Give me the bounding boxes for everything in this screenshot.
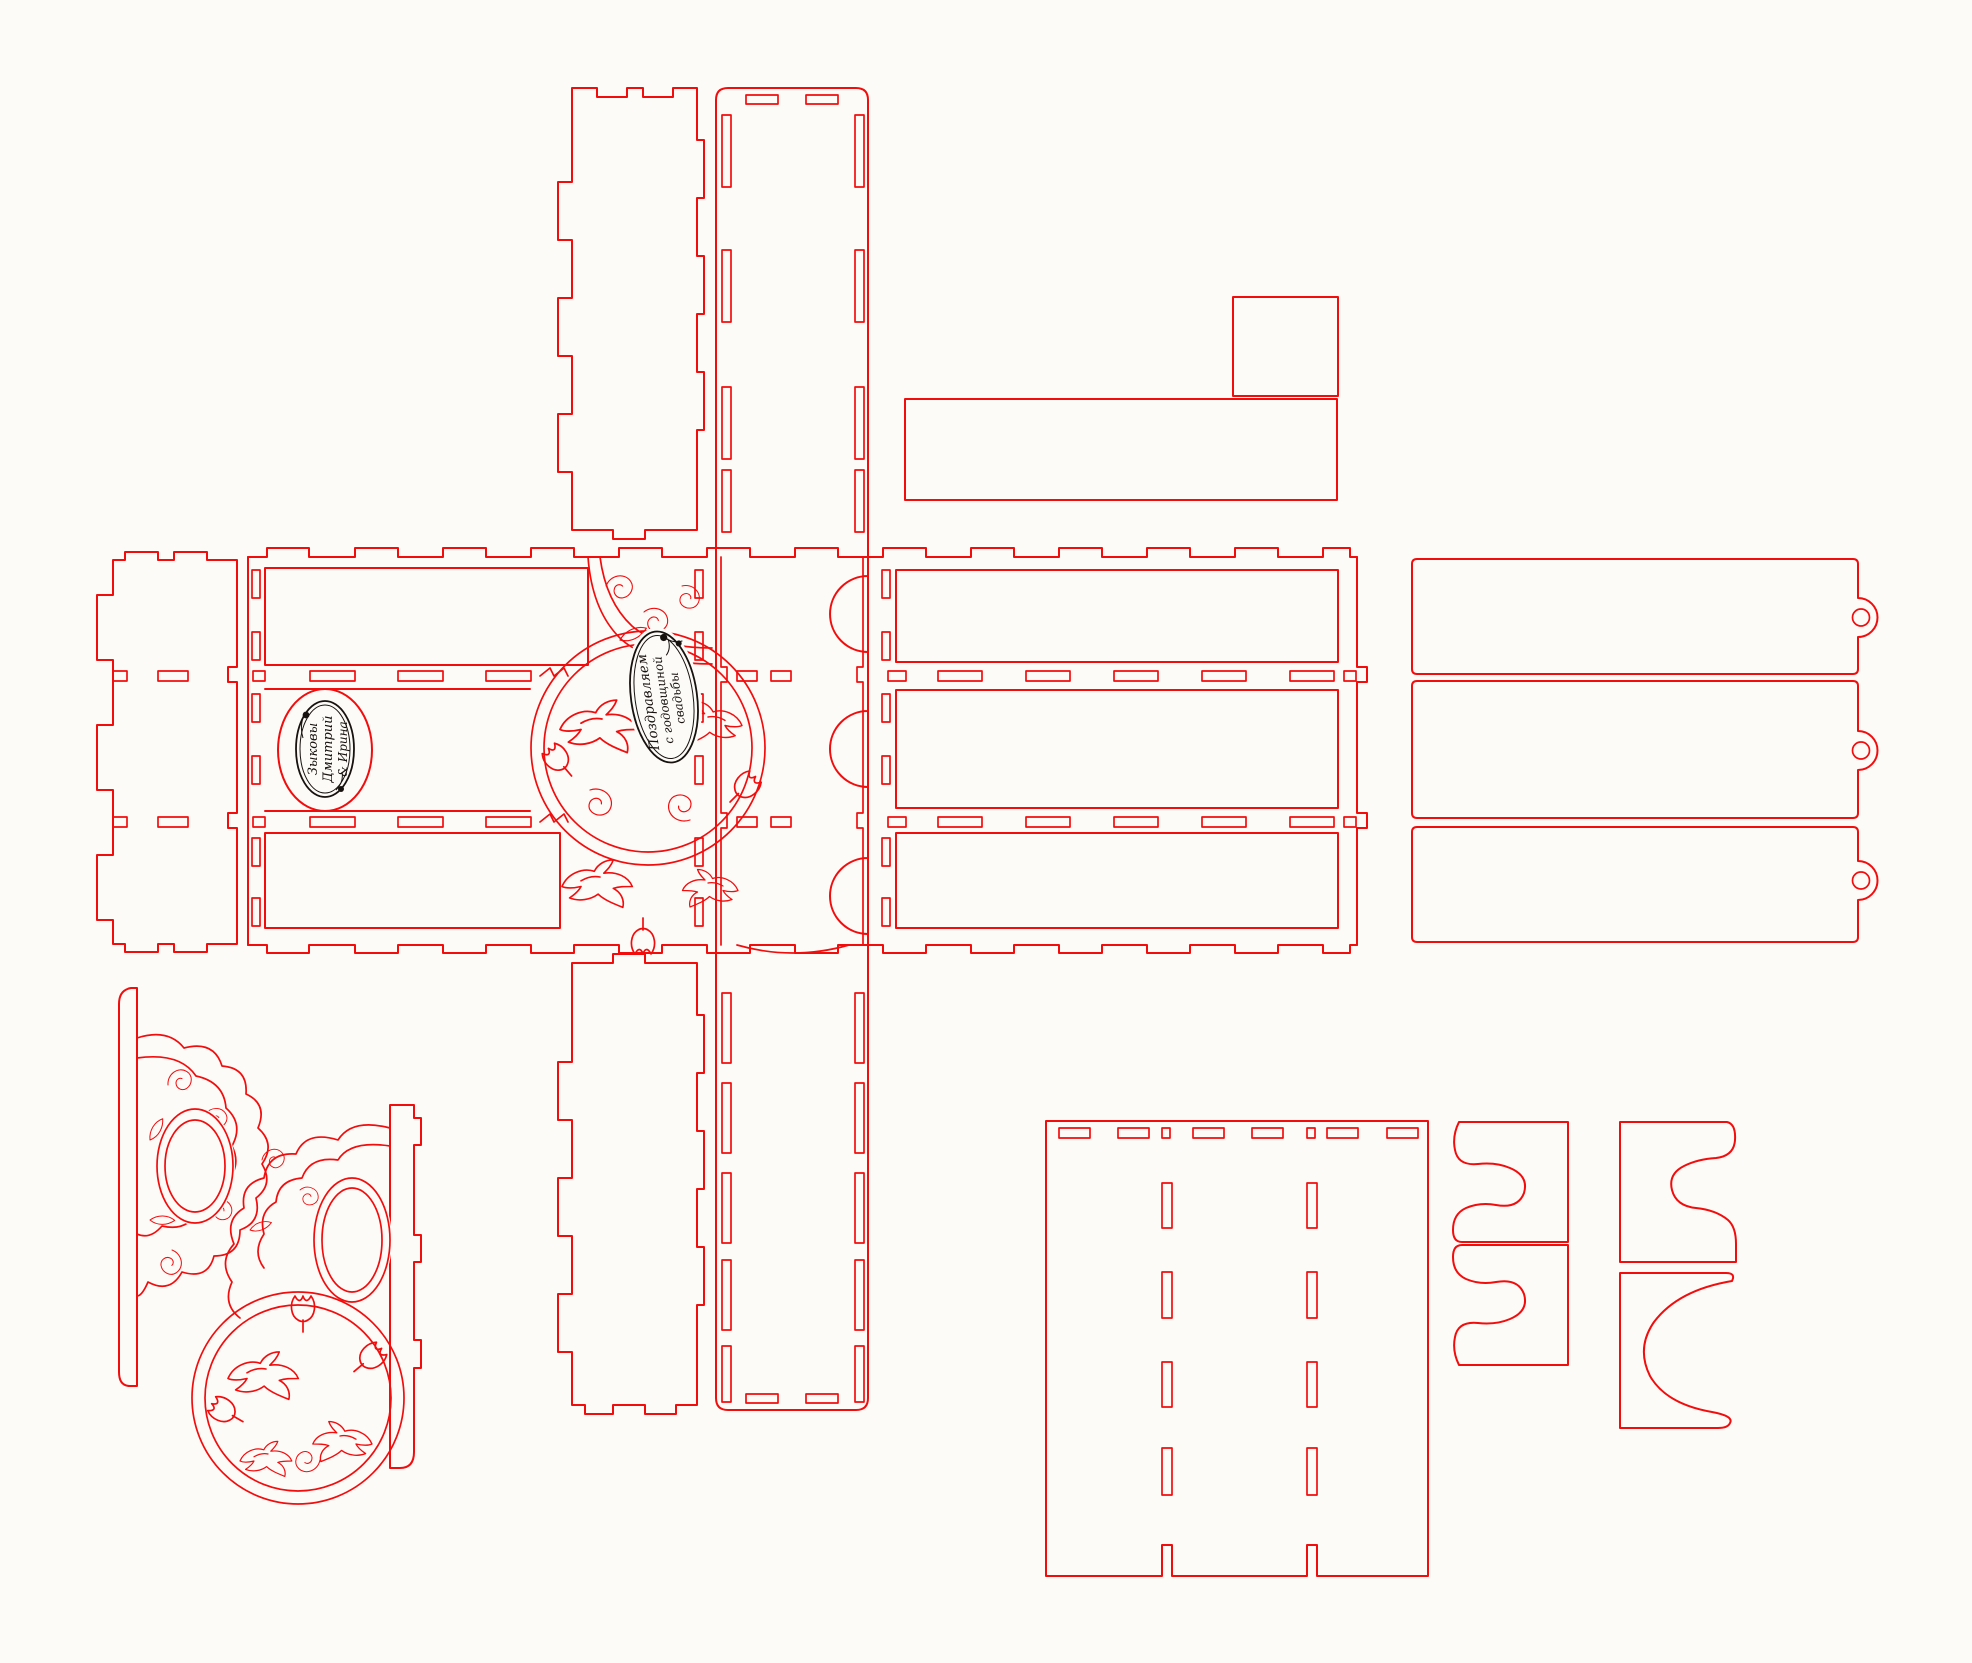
- names-line-1: Зыковы: [306, 723, 321, 775]
- shelf-plank-1-hole: [1853, 609, 1870, 626]
- shelf-planks-group: [1412, 559, 1878, 942]
- laser-cut-layout-canvas: Зыковы Дмитрий & Ирина Поздравляем с год…: [0, 0, 1972, 1663]
- base-panel-slots: [1059, 1128, 1418, 1495]
- bracket-wave-bottom-left: [1453, 1245, 1568, 1365]
- back-panel-window-top: [896, 570, 1338, 662]
- side-right-fan: [225, 1125, 392, 1318]
- back-panel-slots: [882, 570, 890, 926]
- names-oval-plaque: Зыковы Дмитрий & Ирина: [293, 698, 357, 800]
- band-bottom-edge: [248, 945, 1357, 953]
- shelf-plank-2-hole: [1853, 742, 1870, 759]
- plaque-sprig-bud: [303, 712, 310, 719]
- back-panel-window-mid: [896, 690, 1338, 808]
- piece-bottom-wall-panel: [558, 954, 704, 1414]
- piece-back-panel: [830, 557, 1356, 945]
- front-panel-window-bottom: [265, 833, 560, 928]
- base-panel-outline: [1046, 1121, 1428, 1576]
- long-side-slot-cutouts: [722, 95, 864, 1403]
- shelf-plank-2: [1412, 681, 1878, 818]
- side-right-dove-medallion: [192, 1292, 404, 1504]
- band-thumb-notch: [737, 945, 849, 953]
- back-panel-window-bottom: [896, 833, 1338, 928]
- side-right-bar: [390, 1105, 421, 1468]
- long-side-outline: [716, 88, 868, 1410]
- bracket-cradle-bottom-right: [1620, 1273, 1733, 1428]
- band-finger-joint-edges: [248, 548, 1367, 953]
- shelf-plank-3-hole: [1853, 872, 1870, 889]
- piece-long-side-panel: [716, 88, 868, 1410]
- strip-stack-horizontal-block: [905, 399, 1337, 500]
- laser-cut-layout-page: Зыковы Дмитрий & Ирина Поздравляем с год…: [0, 0, 1972, 1663]
- strip-stack-vertical-block: [1233, 297, 1338, 396]
- piece-top-wall-panel: [558, 88, 704, 539]
- bracket-wave-top-right: [1620, 1122, 1736, 1262]
- piece-base-panel: [1046, 1121, 1428, 1576]
- front-panel-window-top: [265, 568, 588, 665]
- bracket-wave-top-left: [1453, 1122, 1568, 1242]
- piece-ornate-front-panel: Зыковы Дмитрий & Ирина Поздравляем с год…: [252, 557, 791, 954]
- band-right-edge: [1357, 557, 1367, 945]
- back-panel-divider-dashes: [888, 671, 1356, 827]
- piece-ornate-side-left: [119, 988, 268, 1386]
- bracket-pieces-group: [1453, 1122, 1736, 1428]
- top-wall-outline: [558, 88, 704, 539]
- left-end-strip-slots: [113, 671, 188, 827]
- band-top-edge: [248, 548, 1357, 557]
- plaque-sprig-bud: [338, 786, 344, 792]
- piece-left-end-strip: [97, 552, 237, 952]
- names-line-2: Дмитрий: [321, 715, 336, 783]
- shelf-plank-3: [1412, 827, 1878, 942]
- side-left-fan: [137, 1035, 268, 1296]
- strip-stack-vertical: [1233, 297, 1338, 396]
- shelf-plank-1: [1412, 559, 1878, 674]
- left-end-strip-outline: [97, 552, 237, 952]
- bottom-wall-outline: [558, 954, 704, 1414]
- names-line-3: & Ирина: [336, 721, 350, 776]
- band-crossing-jogs: [721, 557, 863, 945]
- strip-stack-horizontal: [905, 399, 1337, 500]
- side-left-bar: [119, 988, 137, 1386]
